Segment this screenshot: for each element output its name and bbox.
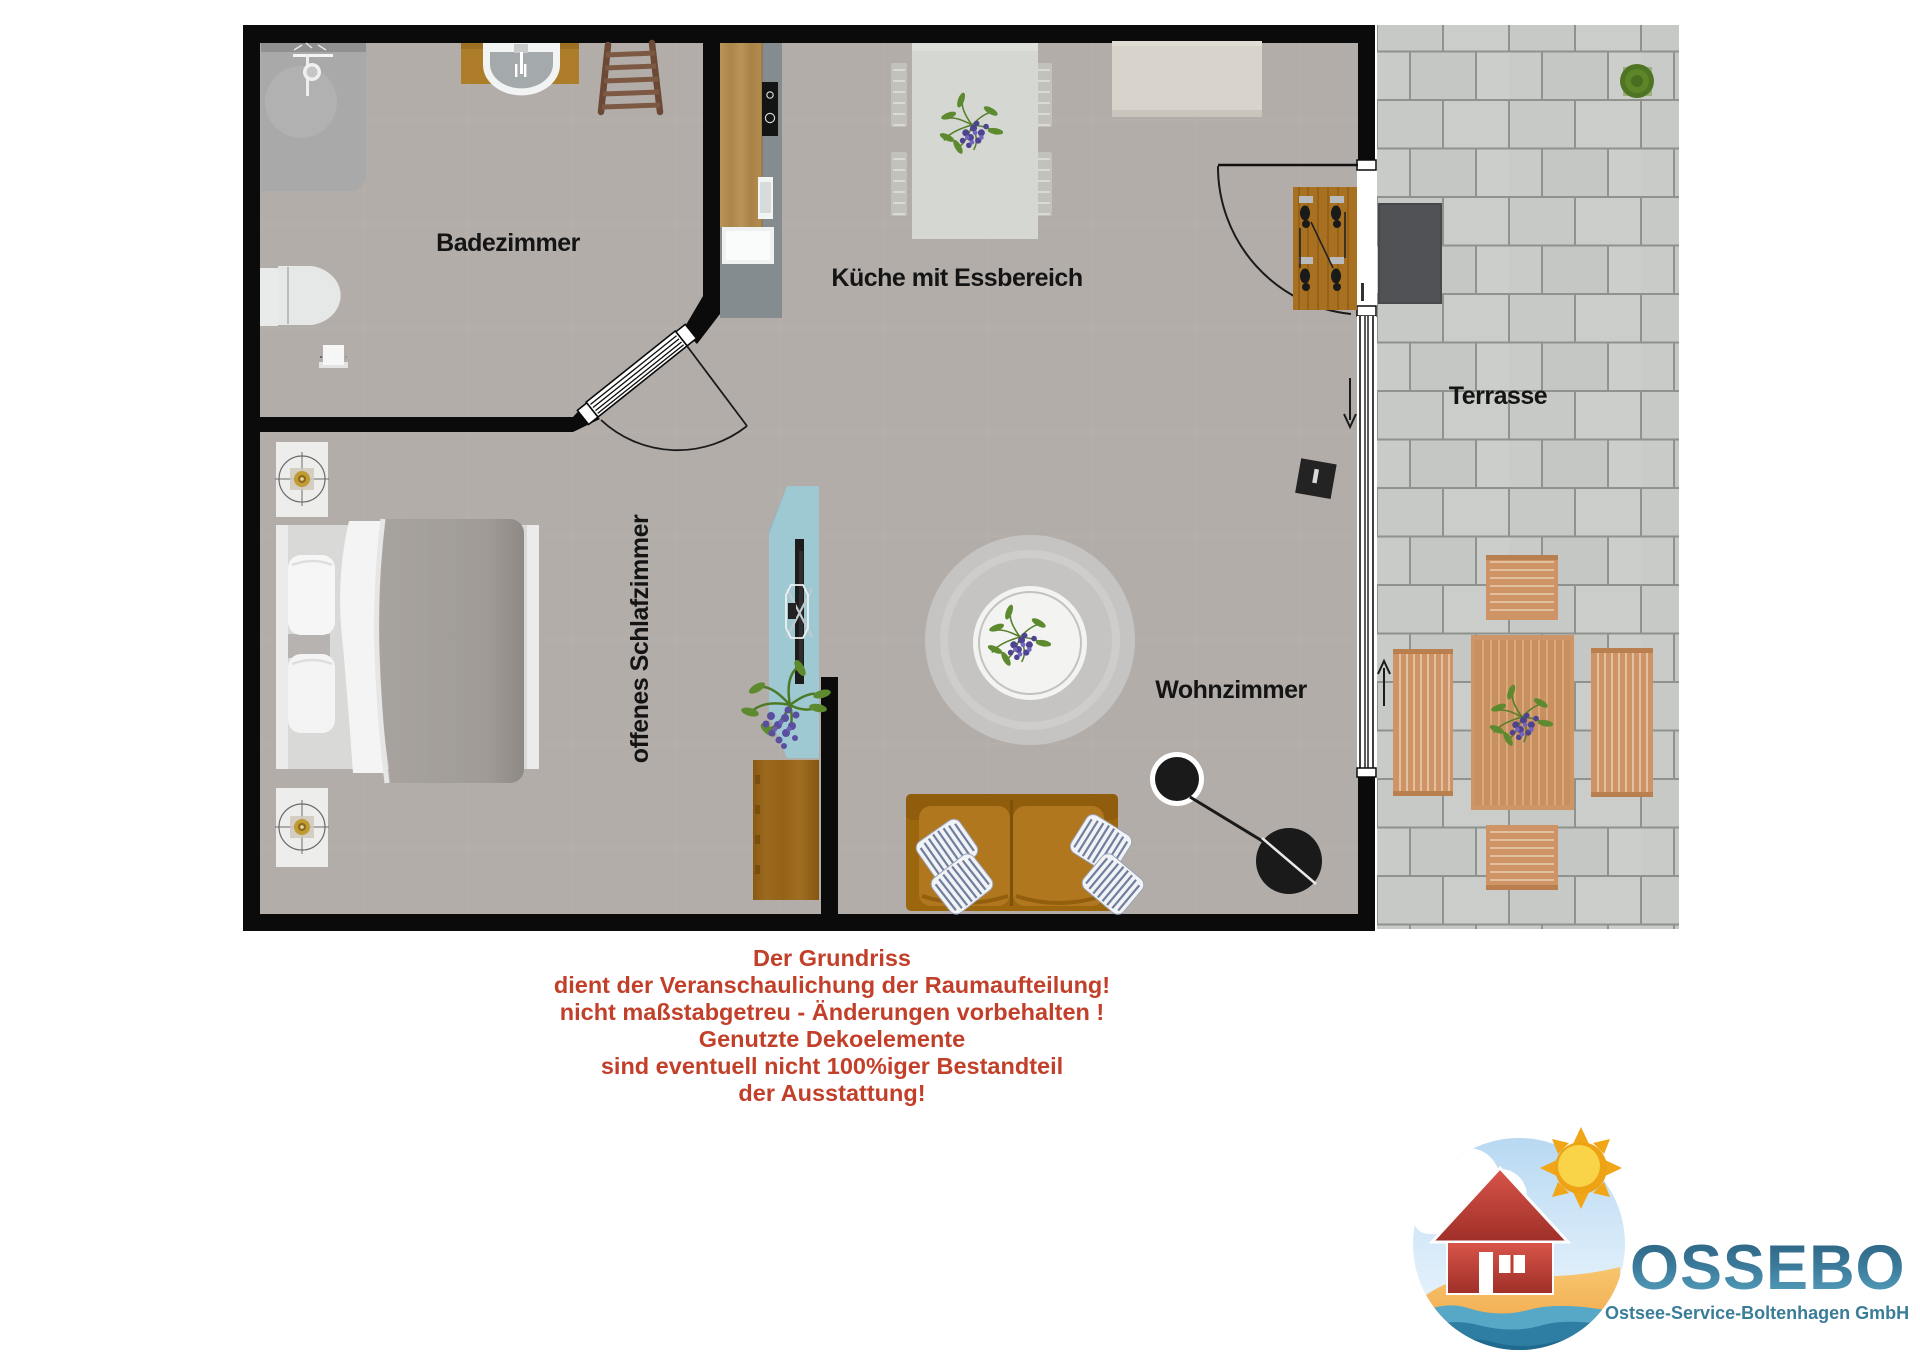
svg-text:dient der Veranschaulichung de: dient der Veranschaulichung der Raumauft… — [554, 972, 1110, 998]
svg-text:Terrasse: Terrasse — [1449, 382, 1548, 410]
svg-text:sind eventuell nicht 100%iger: sind eventuell nicht 100%iger Bestandtei… — [601, 1053, 1063, 1079]
svg-text:offenes Schlafzimmer: offenes Schlafzimmer — [626, 514, 654, 763]
svg-text:nicht maßstabgetreu - Änderung: nicht maßstabgetreu - Änderungen vorbeha… — [560, 999, 1104, 1025]
svg-text:Wohnzimmer: Wohnzimmer — [1155, 676, 1307, 704]
svg-text:der Ausstattung!: der Ausstattung! — [738, 1080, 925, 1106]
svg-text:Ostsee-Service-Boltenhagen Gmb: Ostsee-Service-Boltenhagen GmbH — [1605, 1303, 1909, 1323]
svg-text:Küche mit Essbereich: Küche mit Essbereich — [831, 264, 1082, 292]
svg-text:Genutzte Dekoelemente: Genutzte Dekoelemente — [699, 1026, 965, 1052]
svg-text:OSSEBO: OSSEBO — [1630, 1233, 1906, 1303]
svg-text:Badezimmer: Badezimmer — [436, 229, 580, 257]
svg-text:Der Grundriss: Der Grundriss — [753, 945, 911, 971]
